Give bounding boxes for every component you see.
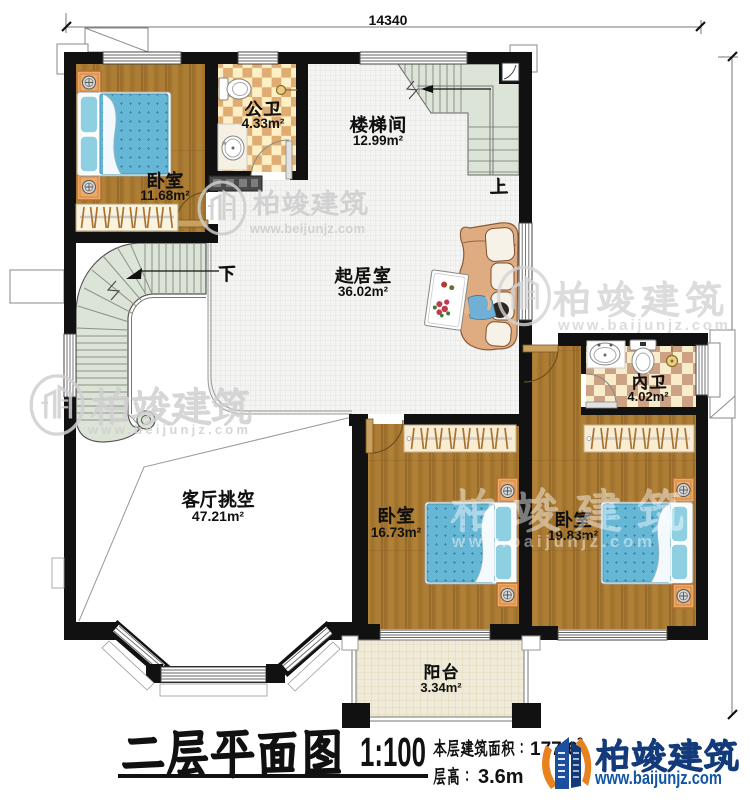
svg-text:3.6m: 3.6m: [478, 766, 524, 788]
svg-text:4.33m²: 4.33m²: [242, 116, 285, 131]
svg-text:47.21m²: 47.21m²: [192, 508, 244, 524]
svg-text:177.6: 177.6: [530, 739, 578, 760]
svg-text:11.68m²: 11.68m²: [140, 188, 190, 203]
svg-text:4.02m²: 4.02m²: [627, 389, 669, 404]
svg-text:16.73m²: 16.73m²: [371, 525, 422, 540]
svg-text:12.99m²: 12.99m²: [353, 133, 404, 148]
svg-text:3.34m²: 3.34m²: [420, 680, 462, 695]
svg-text:1:100: 1:100: [360, 729, 426, 775]
svg-text:www.beijunjz.com: www.beijunjz.com: [249, 221, 365, 236]
svg-text:36.02m²: 36.02m²: [338, 284, 389, 299]
svg-text:www.baijunjz.com: www.baijunjz.com: [594, 768, 722, 788]
svg-text:14340: 14340: [369, 12, 408, 28]
